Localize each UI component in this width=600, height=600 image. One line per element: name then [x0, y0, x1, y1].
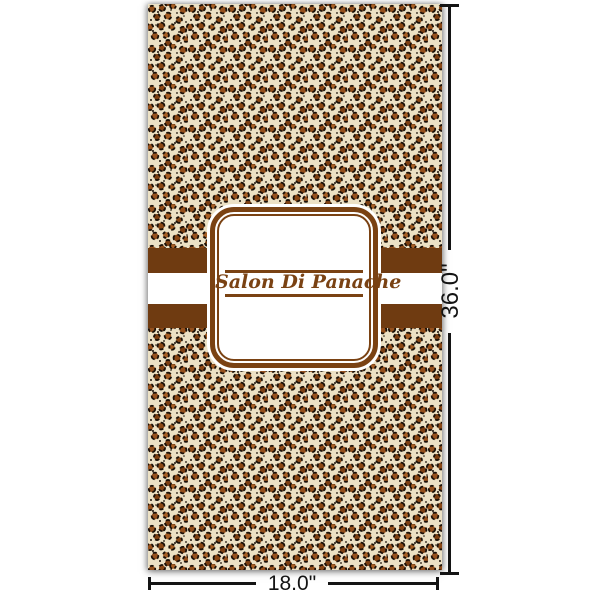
product-preview-canvas: Salon Di Panache 18.0" 36.0" — [0, 0, 600, 600]
height-dimension-label: 36.0" — [438, 241, 464, 341]
height-dimension-line-bottom — [448, 333, 451, 572]
width-dimension-tick-right — [436, 577, 439, 590]
banner-preview: Salon Di Panache — [148, 4, 442, 570]
height-dimension-line-top — [448, 7, 451, 250]
height-dimension-tick-bottom — [440, 572, 459, 575]
label-rule-bottom — [225, 294, 363, 297]
label-text: Salon Di Panache — [215, 269, 373, 295]
width-dimension-label: 18.0" — [250, 572, 334, 595]
monogram-label: Salon Di Panache — [210, 207, 378, 368]
width-dimension-line-left — [151, 582, 256, 585]
width-dimension-line-right — [328, 582, 436, 585]
